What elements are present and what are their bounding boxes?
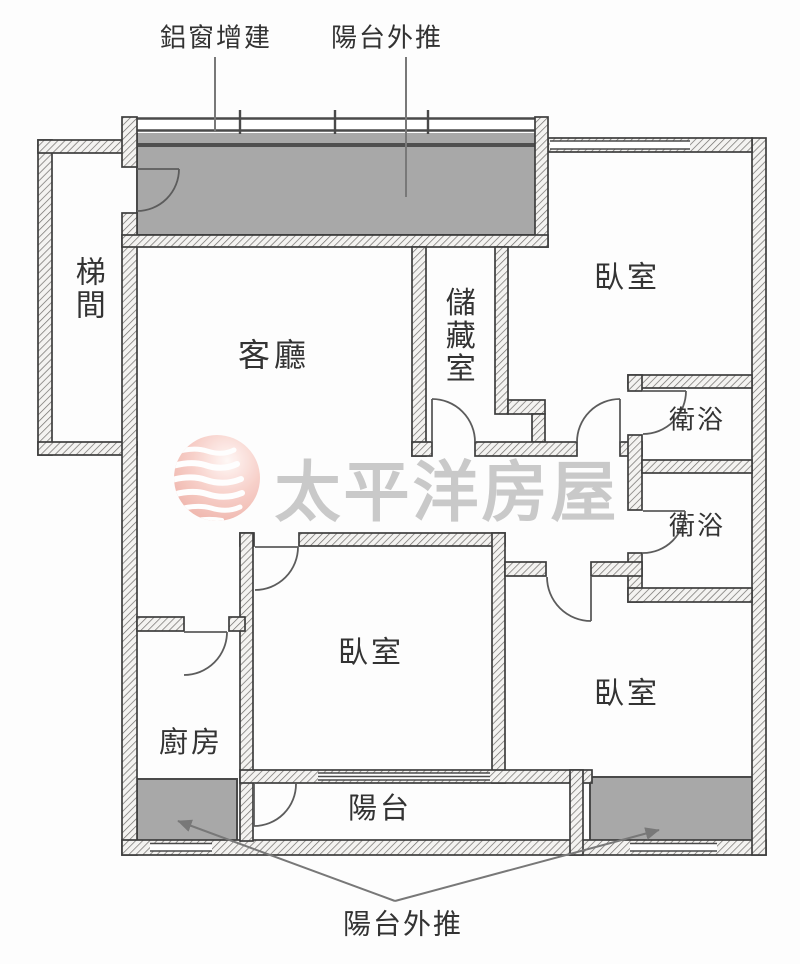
room-label-storage: 儲藏室: [441, 287, 473, 386]
room-label-bedroom-bottom-right: 臥室: [594, 678, 660, 710]
bedroom-middle-door: [255, 547, 298, 590]
annotation-balcony-pushout-bottom: 陽台外推: [343, 909, 463, 938]
room-label-bathroom-upper: 衛浴: [669, 407, 725, 434]
bottom-left-extension-area: [137, 779, 237, 841]
leader-bottom-left-arrow: [178, 821, 395, 901]
bedroom1-top-window: [550, 141, 690, 149]
bottom-left-window: [150, 843, 212, 852]
room-label-stairwell: 梯間: [71, 256, 103, 322]
watermark-logo: [165, 435, 260, 522]
room-label-bathroom-lower: 衛浴: [669, 513, 725, 540]
room-label-kitchen: 廚房: [159, 727, 223, 757]
kitchen-door: [184, 632, 227, 675]
room-label-living-room: 客廳: [238, 339, 310, 373]
top-balcony-inner-line: [137, 143, 538, 147]
top-window-band: [122, 110, 548, 134]
bedroom-bottom-right-door: [547, 577, 591, 621]
bottom-right-extension-area: [590, 777, 753, 841]
bottom-right-window: [630, 843, 717, 852]
floor-plan: 太平洋房屋 鋁窗增建 陽台外推 陽台外推 梯間 客廳 儲藏室 臥室 衛浴 衛浴 …: [0, 0, 800, 964]
watermark-brand-text: 太平洋房屋: [275, 439, 620, 535]
balcony-door: [254, 784, 296, 826]
room-label-bedroom-top-right: 臥室: [594, 262, 660, 294]
storage-door: [432, 399, 475, 442]
annotation-balcony-pushout-top: 陽台外推: [331, 25, 443, 52]
annotation-aluminum-window-addition: 鋁窗增建: [160, 25, 272, 52]
bedroom-top-right-door: [577, 399, 620, 442]
room-label-bedroom-middle: 臥室: [338, 637, 404, 669]
room-label-balcony: 陽台: [348, 793, 412, 823]
